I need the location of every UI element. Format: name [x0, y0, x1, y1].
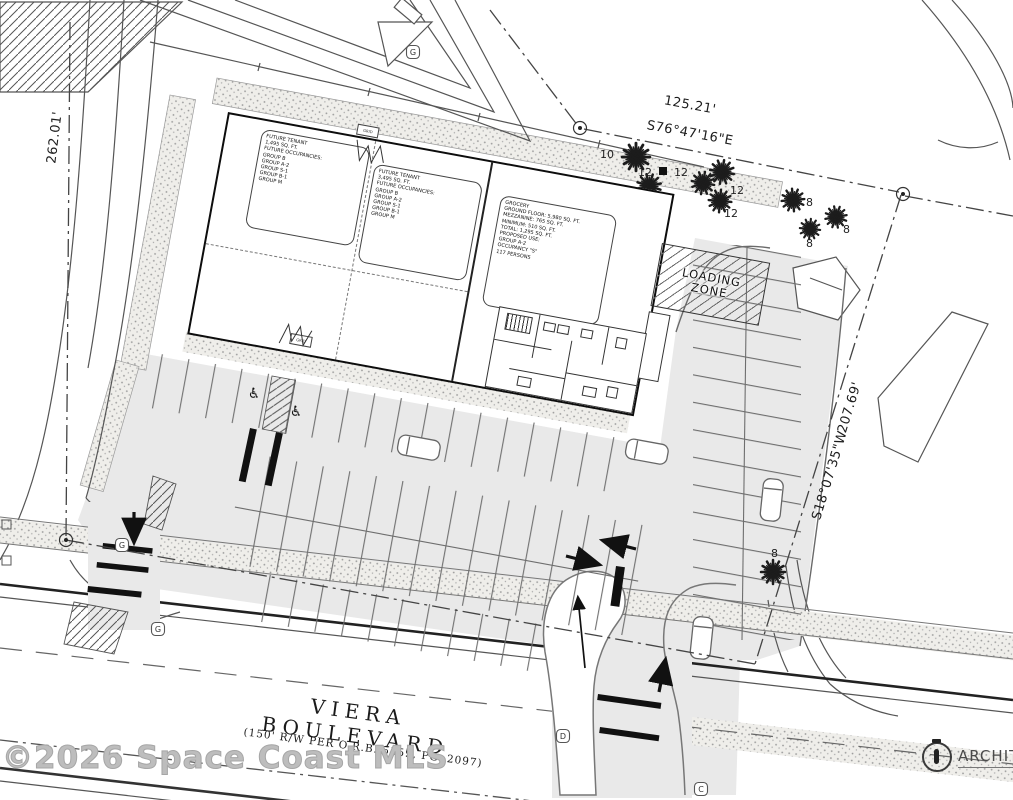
mls-watermark: ©2026 Space Coast MLS	[2, 740, 449, 776]
keyed-note-label: D	[560, 732, 566, 741]
tree-label: 8	[806, 237, 813, 250]
keyed-note-label: G	[155, 625, 161, 634]
keyed-note-label: G	[410, 48, 416, 57]
tree-label: 12	[730, 184, 744, 197]
tenant2-note-box: FUTURE TENANT 3,495 SQ. FT. FUTURE OCCUP…	[357, 163, 483, 281]
tree-label: 12	[638, 166, 652, 179]
tree-label: 10	[600, 148, 614, 161]
site-plan-canvas: 10 12 12 12 12 8 8 8 8 G G G D C FUTURE …	[0, 0, 1013, 800]
tree-label: 8	[806, 196, 813, 209]
tree-label: 8	[843, 223, 850, 236]
tenant1-note-box: FUTURE TENANT 1,495 SQ. FT. FUTURE OCCUP…	[245, 129, 371, 247]
site-plan-linework: 10 12 12 12 12 8 8 8 8 G G G D C	[0, 0, 1013, 800]
tree-label: 12	[724, 207, 738, 220]
architect-logo-text: ARCHITEC	[958, 747, 1013, 768]
stairs	[504, 313, 533, 334]
tree-label: 12	[674, 166, 688, 179]
architect-logo-icon	[922, 742, 952, 772]
keyed-note-label: G	[119, 541, 125, 550]
tree-label: 8	[771, 547, 778, 560]
loading-zone-label: LOADING ZONE	[679, 266, 742, 303]
grid-marker-label: GRID	[363, 128, 373, 135]
keyed-note-label: C	[698, 785, 704, 794]
entry-canopy-south	[276, 319, 316, 353]
architect-logo: ARCHITEC	[922, 742, 1013, 772]
